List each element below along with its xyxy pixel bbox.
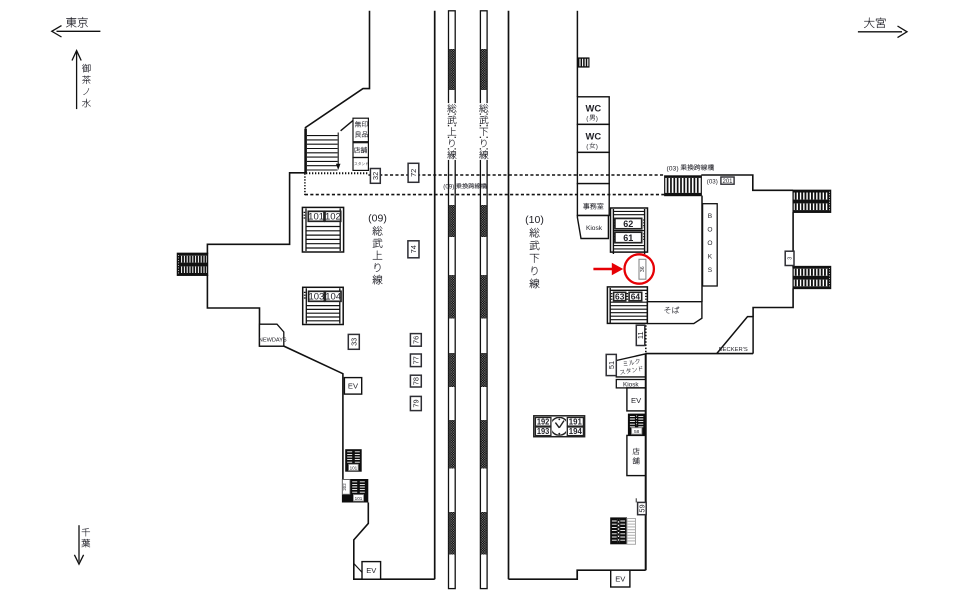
svg-text:194: 194 (569, 427, 583, 436)
svg-text:36: 36 (640, 266, 646, 272)
svg-text:3: 3 (788, 257, 794, 260)
svg-text:77: 77 (412, 356, 421, 364)
svg-text:O: O (707, 227, 712, 234)
svg-text:78: 78 (412, 377, 421, 385)
svg-text:201: 201 (722, 179, 733, 185)
svg-text:58: 58 (634, 429, 640, 435)
svg-text:WC: WC (585, 131, 601, 142)
svg-text:61: 61 (623, 233, 633, 243)
svg-text:101: 101 (308, 212, 324, 223)
svg-text:192: 192 (537, 418, 550, 427)
svg-text:103: 103 (308, 292, 324, 303)
svg-text:64: 64 (631, 291, 641, 301)
svg-text:79: 79 (412, 399, 421, 407)
svg-text:191: 191 (569, 418, 583, 427)
svg-text:11: 11 (636, 331, 645, 339)
svg-text:32: 32 (371, 172, 380, 180)
svg-text:(10): (10) (525, 214, 544, 226)
svg-text:(09): (09) (368, 213, 387, 225)
svg-text:O: O (707, 240, 712, 247)
svg-text:K: K (708, 254, 713, 261)
svg-text:S: S (708, 267, 713, 274)
svg-text:EV: EV (366, 566, 377, 575)
svg-text:74: 74 (409, 245, 418, 253)
svg-text:202: 202 (342, 483, 347, 491)
svg-text:101: 101 (350, 466, 358, 471)
svg-text:(03): (03) (667, 165, 679, 172)
svg-text:(09): (09) (443, 184, 454, 191)
svg-text:33: 33 (350, 338, 359, 346)
svg-text:NEWDAYS: NEWDAYS (259, 337, 287, 343)
svg-text:72: 72 (409, 169, 418, 177)
svg-text:62: 62 (623, 219, 633, 229)
svg-text:Kiosk: Kiosk (586, 225, 603, 232)
svg-text:102: 102 (325, 212, 341, 223)
svg-text:104: 104 (325, 292, 341, 303)
svg-text:EV: EV (348, 382, 359, 391)
svg-text:63: 63 (615, 291, 625, 301)
svg-text:): ) (596, 144, 598, 151)
svg-text:51: 51 (607, 361, 616, 369)
svg-text:59: 59 (638, 504, 647, 512)
svg-text:WC: WC (585, 103, 601, 114)
svg-text:): ) (596, 116, 598, 123)
svg-text:B: B (708, 213, 713, 220)
svg-text:EV: EV (631, 396, 642, 405)
svg-text:BECKER’S: BECKER’S (719, 347, 748, 353)
svg-text:193: 193 (537, 427, 550, 436)
svg-text:EV: EV (615, 574, 626, 583)
svg-text:(03): (03) (707, 178, 718, 185)
svg-text:76: 76 (412, 336, 421, 344)
svg-text:101: 101 (355, 496, 363, 501)
